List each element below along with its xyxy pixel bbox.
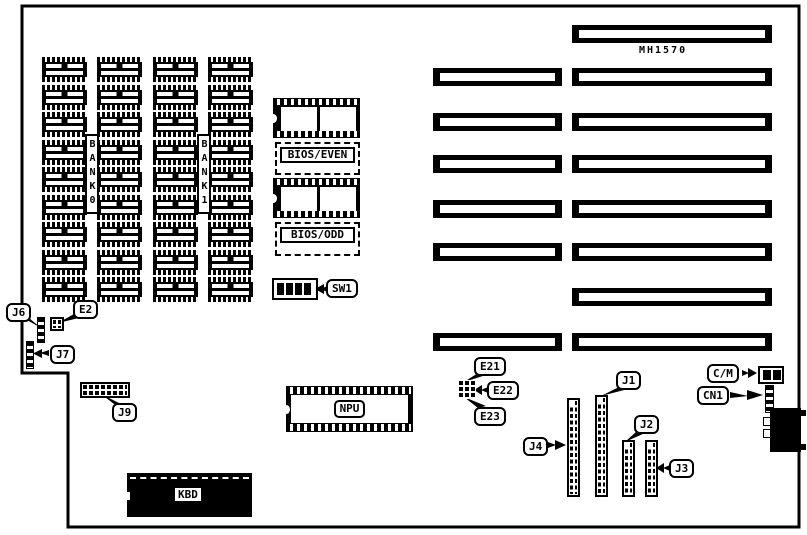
- callout-j3: J3: [669, 459, 694, 478]
- callout-e23: E23: [474, 407, 506, 426]
- expansion-slot: [572, 243, 772, 261]
- expansion-slot-16bit-extension: [433, 155, 562, 173]
- callout-cn1: CN1: [697, 386, 729, 405]
- connector-j3: [645, 440, 658, 497]
- expansion-slot-16bit-extension: [433, 113, 562, 131]
- connector-tab: [801, 444, 806, 450]
- connector-pin: [763, 429, 776, 438]
- bank1-label: BANK1: [197, 134, 211, 214]
- connector-j2: [622, 440, 635, 497]
- callout-j9: J9: [112, 403, 137, 422]
- callout-cm: C/M: [707, 364, 739, 383]
- expansion-slot-16bit-extension: [433, 68, 562, 86]
- callout-e22: E22: [487, 381, 519, 400]
- connector-j6: [37, 317, 45, 343]
- expansion-slot-16bit-extension: [433, 200, 562, 218]
- expansion-slot: [572, 200, 772, 218]
- callout-e2: E2: [73, 300, 98, 319]
- expansion-slot: [572, 333, 772, 351]
- expansion-slot-16bit-extension: [433, 333, 562, 351]
- connector-j7: [26, 341, 34, 369]
- connector-j9: [80, 382, 130, 398]
- expansion-slot: [572, 113, 772, 131]
- callout-j4: J4: [523, 437, 548, 456]
- connector-j1: [595, 395, 608, 497]
- part-number-label: MH1570: [639, 45, 687, 56]
- connector-j4: [567, 398, 580, 497]
- callout-sw1: SW1: [326, 279, 358, 298]
- jumper-e2: [50, 317, 64, 331]
- expansion-slot-area: [0, 0, 807, 535]
- bank0-label: BANK0: [85, 134, 99, 214]
- callout-j7: J7: [50, 345, 75, 364]
- callout-j2: J2: [634, 415, 659, 434]
- callout-j1: J1: [616, 371, 641, 390]
- expansion-slot: [572, 68, 772, 86]
- jumper-block-e21-e23: [458, 380, 476, 399]
- expansion-slot-16bit-extension: [433, 243, 562, 261]
- motherboard-diagram: BANK0 BANK1 BIOS/EVEN BIOS/ODD NPU KBD: [0, 0, 807, 535]
- callout-j6: J6: [6, 303, 31, 322]
- expansion-slot: [572, 288, 772, 306]
- keyboard-connector: [770, 408, 801, 452]
- expansion-slot: [572, 25, 772, 43]
- expansion-slot: [572, 155, 772, 173]
- connector-tab: [801, 410, 806, 416]
- jumper-cm: [758, 366, 784, 384]
- connector-pin: [763, 417, 776, 426]
- callout-e21: E21: [474, 357, 506, 376]
